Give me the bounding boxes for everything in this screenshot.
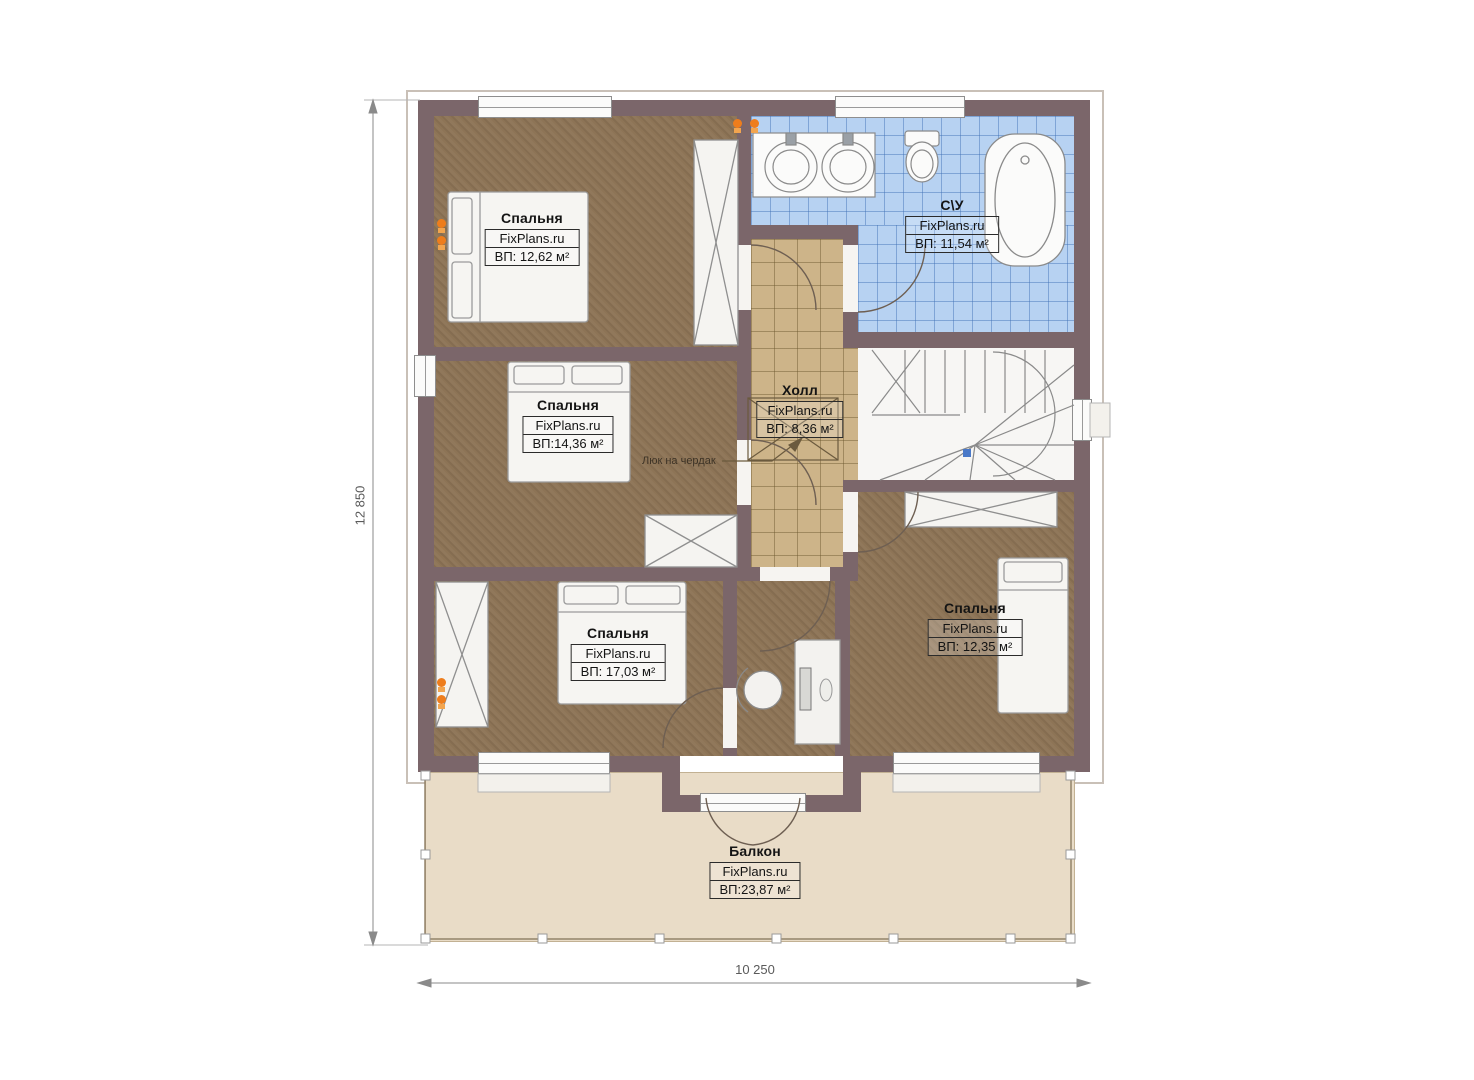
socket-marker — [437, 695, 446, 704]
wall — [835, 581, 850, 756]
watermark-text: FixPlans.ru — [572, 645, 665, 663]
attic-hatch-label: Люк на чердак — [642, 455, 716, 467]
room-label-box: FixPlans.ru ВП: 12,62 м² — [485, 229, 580, 266]
door-opening-bedroom4 — [843, 492, 858, 552]
room-label-hall: Холл FixPlans.ru ВП: 8,36 м² — [756, 382, 843, 438]
room-label-box: FixPlans.ru ВП: 12,35 м² — [928, 619, 1023, 656]
wall — [434, 567, 737, 581]
wall — [843, 552, 858, 581]
socket-marker — [750, 119, 759, 128]
room-area: ВП: 12,62 м² — [486, 248, 579, 265]
room-name: Балкон — [709, 843, 800, 859]
bedroom1-floor — [434, 116, 737, 347]
room-name: Спальня — [522, 397, 613, 413]
socket-marker — [437, 236, 446, 245]
watermark-text: FixPlans.ru — [486, 230, 579, 248]
window — [1072, 399, 1092, 441]
room-area: ВП:23,87 м² — [710, 881, 799, 898]
watermark-text: FixPlans.ru — [523, 417, 612, 435]
socket-marker — [437, 219, 446, 228]
door-opening-bedroom1 — [737, 245, 751, 310]
watermark-text: FixPlans.ru — [757, 402, 842, 420]
room-label-box: FixPlans.ru ВП: 11,54 м² — [905, 216, 999, 253]
room-label-bedroom2: Спальня FixPlans.ru ВП:14,36 м² — [522, 397, 613, 453]
room-name: Спальня — [571, 625, 666, 641]
window — [414, 355, 436, 397]
window — [478, 752, 610, 774]
socket-marker — [437, 678, 446, 687]
room-label-box: FixPlans.ru ВП: 17,03 м² — [571, 644, 666, 681]
window — [478, 96, 612, 118]
room-label-bedroom1: Спальня FixPlans.ru ВП: 12,62 м² — [485, 210, 580, 266]
wall — [737, 225, 858, 239]
stairwell-floor — [858, 348, 1074, 480]
balcony-french-door — [700, 793, 806, 812]
hall-floor-upper — [751, 239, 843, 348]
socket-marker — [733, 119, 742, 128]
window — [835, 96, 965, 118]
room-label-bedroom4: Спальня FixPlans.ru ВП: 12,35 м² — [928, 600, 1023, 656]
watermark-text: FixPlans.ru — [929, 620, 1022, 638]
hall-floor-lower — [751, 348, 858, 567]
room-name: С\У — [905, 197, 999, 213]
room-label-bathroom: С\У FixPlans.ru ВП: 11,54 м² — [905, 197, 999, 253]
room-label-box: FixPlans.ru ВП:23,87 м² — [709, 862, 800, 899]
room-label-bedroom3: Спальня FixPlans.ru ВП: 17,03 м² — [571, 625, 666, 681]
study-nook-floor — [737, 581, 835, 756]
wall — [434, 347, 750, 361]
wall — [850, 480, 1074, 492]
room-area: ВП: 12,35 м² — [929, 638, 1022, 655]
room-area: ВП: 11,54 м² — [906, 235, 998, 252]
room-name: Спальня — [928, 600, 1023, 616]
room-label-box: FixPlans.ru ВП:14,36 м² — [522, 416, 613, 453]
room-label-balcony: Балкон FixPlans.ru ВП:23,87 м² — [709, 843, 800, 899]
room-name: Спальня — [485, 210, 580, 226]
room-area: ВП: 17,03 м² — [572, 663, 665, 680]
dimension-height-label: 12 850 — [353, 474, 368, 538]
window — [893, 752, 1040, 774]
wall — [800, 795, 861, 812]
door-opening-study — [760, 567, 830, 581]
watermark-text: FixPlans.ru — [710, 863, 799, 881]
wall — [843, 225, 858, 245]
door-opening-bedroom2 — [737, 440, 751, 505]
room-name: Холл — [756, 382, 843, 398]
room-area: ВП: 8,36 м² — [757, 420, 842, 437]
room-area: ВП:14,36 м² — [523, 435, 612, 452]
wall — [843, 332, 1074, 348]
door-opening-bathroom — [843, 245, 858, 312]
dimension-width-label: 10 250 — [715, 962, 795, 977]
watermark-text: FixPlans.ru — [906, 217, 998, 235]
floor-plan-canvas: Спальня FixPlans.ru ВП: 12,62 м² С\У Fix… — [0, 0, 1474, 1080]
wall — [418, 100, 434, 772]
room-label-box: FixPlans.ru ВП: 8,36 м² — [756, 401, 843, 438]
door-opening-bedroom3 — [723, 688, 737, 748]
